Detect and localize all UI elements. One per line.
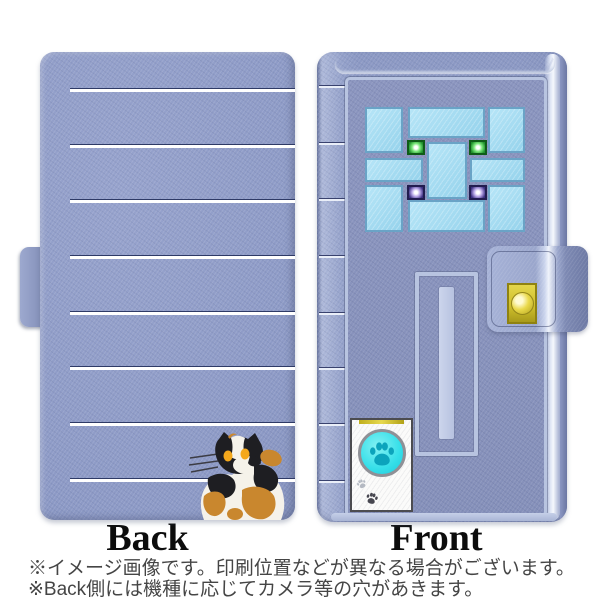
disclaimer-notes: ※イメージ画像です。印刷位置などが異なる場合がございます。 ※Back側には機種…	[28, 559, 594, 600]
green-light-icon	[469, 140, 487, 155]
paw-doorbell-button	[358, 429, 406, 477]
product-image-canvas: Back Front ※イメージ画像です。印刷位置などが異なる場合がございます。…	[0, 0, 600, 600]
window-pane	[408, 107, 485, 138]
purple-light-icon	[407, 185, 425, 200]
stitch-line	[70, 88, 295, 92]
spine-hinge-line	[319, 85, 345, 88]
magnetic-strap	[487, 246, 588, 332]
case-back-view	[40, 52, 295, 520]
window-pane	[470, 158, 525, 182]
purple-light-icon	[469, 185, 487, 200]
intercom-gold-strip	[359, 420, 404, 424]
stitch-line	[70, 255, 295, 259]
cat-eye-left	[224, 451, 233, 462]
gold-snap-plate	[507, 283, 537, 324]
window-pane	[365, 107, 403, 153]
paw-print-icon	[367, 438, 397, 468]
window-pane	[488, 185, 525, 232]
small-paw-print-icon	[364, 490, 381, 507]
gold-snap-button	[511, 292, 534, 315]
stitch-line	[70, 144, 295, 148]
spine-hinge-line	[319, 480, 345, 483]
doorbell-intercom-box	[350, 418, 413, 512]
cat-caramel-patch-center	[227, 508, 243, 520]
spine-hinge-line	[319, 312, 345, 315]
back-label: Back	[40, 519, 255, 557]
case-bottom-edge	[331, 513, 557, 521]
front-label: Front	[329, 519, 544, 557]
stitch-line	[70, 366, 295, 370]
calico-cat-illustration	[188, 430, 294, 520]
window-pane	[365, 185, 403, 232]
note-line-2: ※Back側には機種に応じてカメラ等の穴があきます。	[28, 580, 594, 600]
door-transom-window	[335, 55, 555, 73]
stitch-line	[70, 422, 295, 426]
window-pane	[408, 200, 485, 232]
window-pane-center	[427, 142, 467, 199]
green-light-icon	[407, 140, 425, 155]
spine-hinge-line	[319, 142, 345, 145]
cat-eye-right	[241, 449, 250, 460]
spine-hinge-line	[319, 255, 345, 258]
spine-hinge-line	[319, 367, 345, 370]
door-lower-panel-inset	[439, 287, 454, 439]
window-pane	[488, 107, 525, 153]
spine-hinge-line	[319, 198, 345, 201]
stitch-line	[70, 311, 295, 315]
stitch-line	[70, 199, 295, 203]
spine-hinge-line	[319, 423, 345, 426]
window-pane	[365, 158, 423, 182]
cat-whiskers	[189, 454, 218, 472]
note-line-1: ※イメージ画像です。印刷位置などが異なる場合がございます。	[28, 559, 594, 580]
